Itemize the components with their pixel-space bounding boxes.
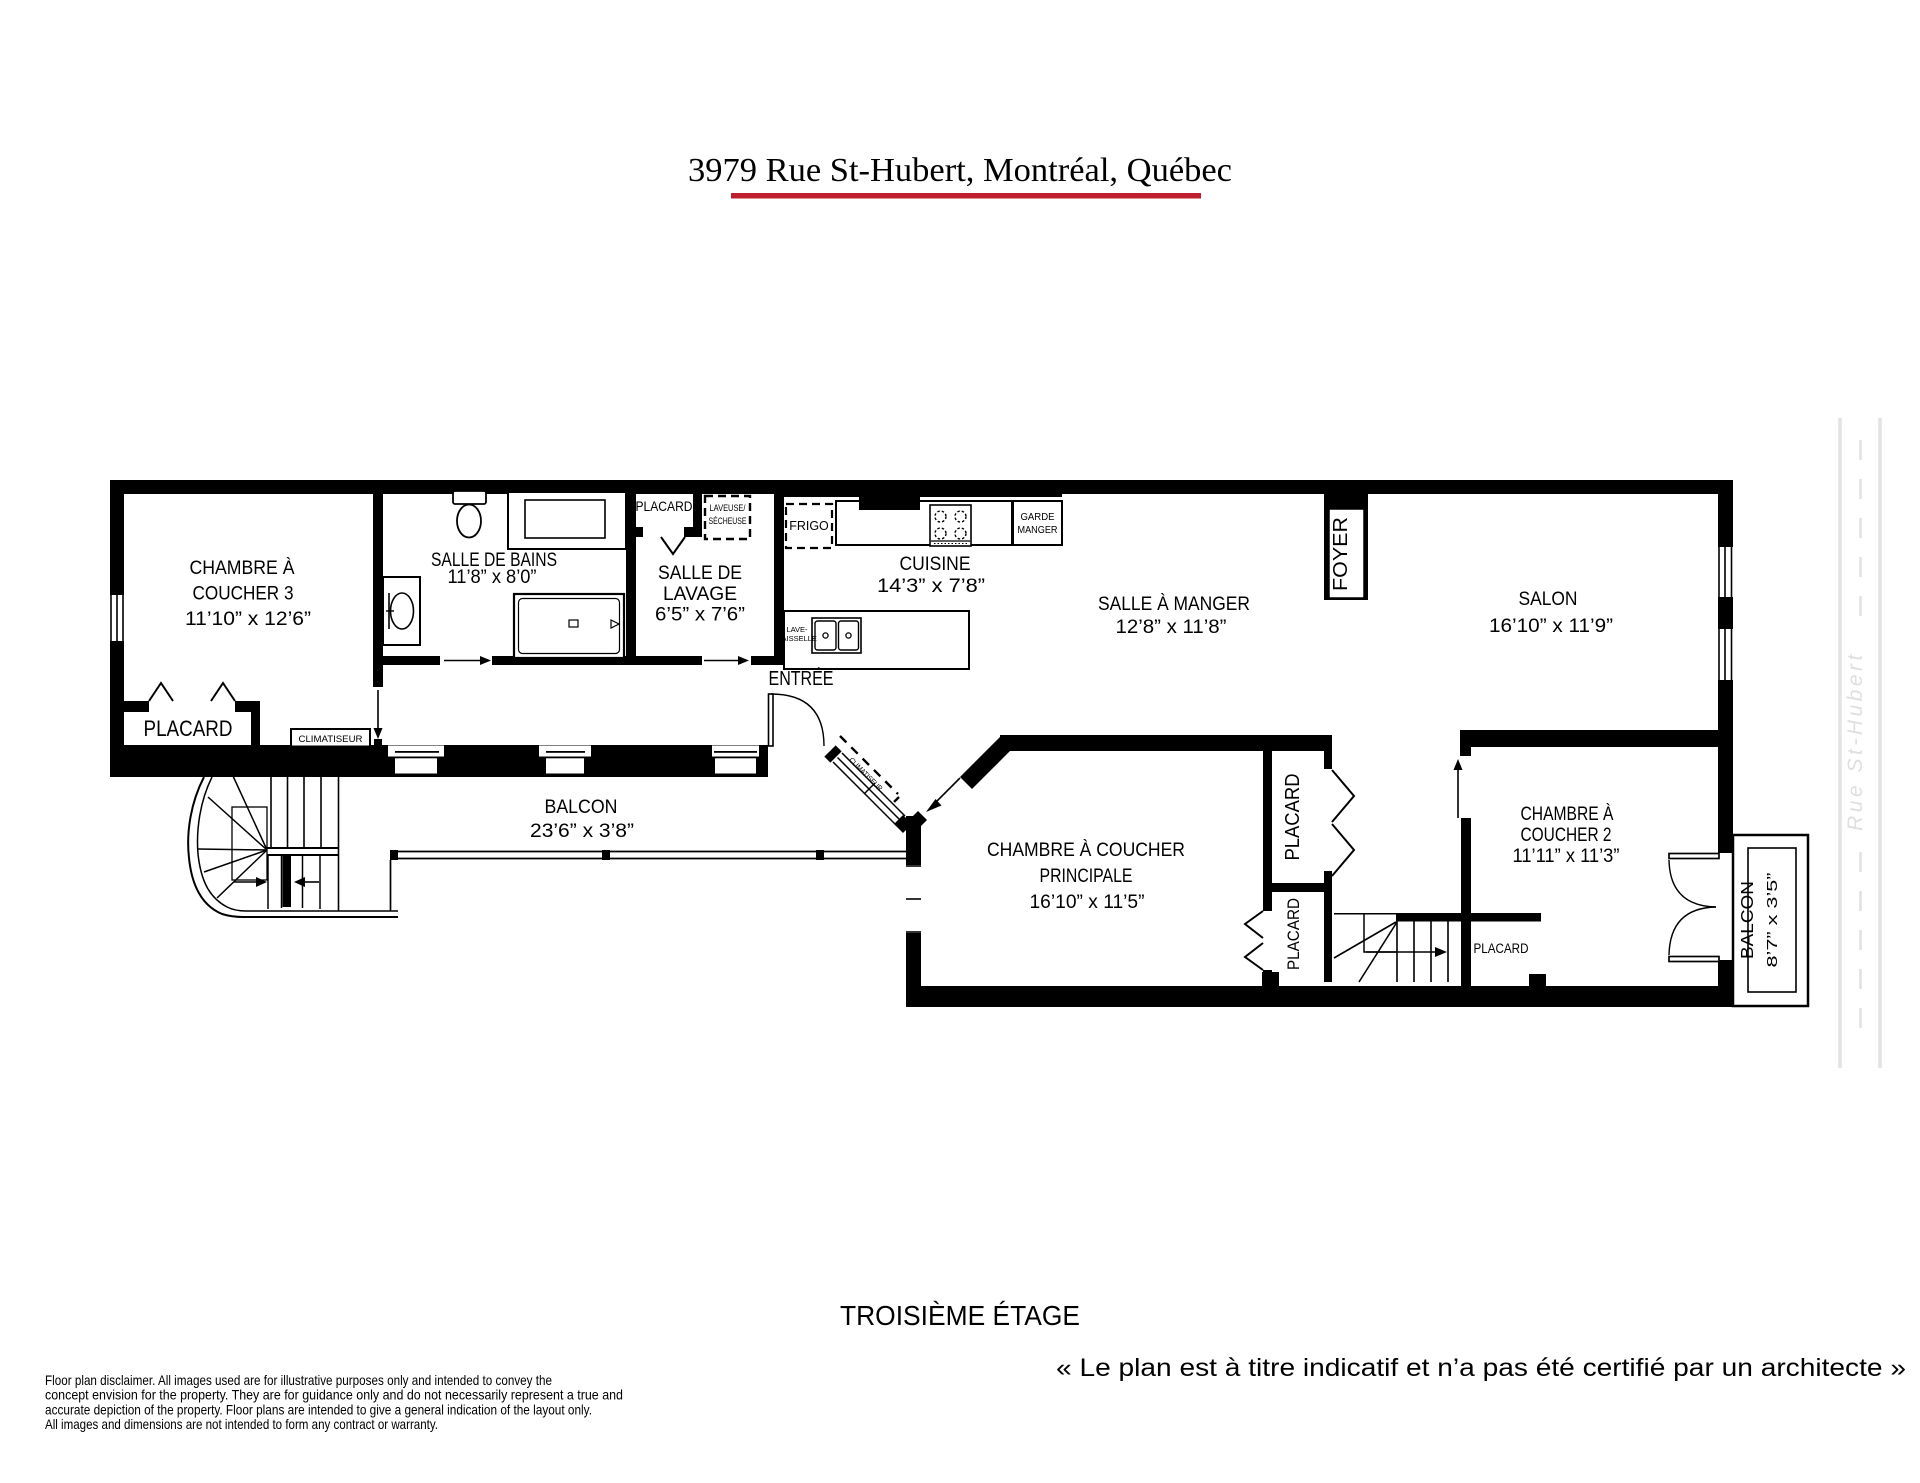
svg-text:PLACARD: PLACARD <box>144 716 233 741</box>
svg-text:6’5” x 7’6”: 6’5” x 7’6” <box>655 605 745 626</box>
svg-text:PLACARD: PLACARD <box>1284 898 1303 970</box>
svg-text:LAVE-: LAVE- <box>786 625 808 634</box>
svg-text:MANGER: MANGER <box>1018 524 1058 536</box>
svg-text:accurate depiction of the prop: accurate depiction of the property. Floo… <box>45 1401 592 1417</box>
svg-text:COUCHER 2: COUCHER 2 <box>1521 825 1612 846</box>
svg-text:16’10” x 11’9”: 16’10” x 11’9” <box>1489 616 1613 637</box>
svg-text:GARDE: GARDE <box>1021 511 1055 523</box>
svg-text:CUISINE: CUISINE <box>900 554 971 575</box>
svg-text:Floor plan disclaimer. All ima: Floor plan disclaimer. All images used a… <box>45 1372 552 1388</box>
svg-text:14’3” x 7’8”: 14’3” x 7’8” <box>877 576 985 597</box>
svg-text:23’6” x 3’8”: 23’6” x 3’8” <box>530 821 634 842</box>
svg-text:11’10” x 12’6”: 11’10” x 12’6” <box>185 609 311 630</box>
svg-text:« Le plan est à titre indicati: « Le plan est à titre indicatif et n’a p… <box>1056 1354 1906 1382</box>
svg-text:COUCHER 3: COUCHER 3 <box>193 584 294 605</box>
svg-text:PRINCIPALE: PRINCIPALE <box>1040 866 1133 887</box>
svg-text:FOYER: FOYER <box>1330 517 1352 591</box>
svg-text:PLACARD: PLACARD <box>636 498 693 514</box>
svg-text:SALLE À MANGER: SALLE À MANGER <box>1098 594 1250 615</box>
svg-text:8’7” x 3’5”: 8’7” x 3’5” <box>1764 872 1781 967</box>
svg-text:PLACARD: PLACARD <box>1474 941 1529 956</box>
svg-text:concept envision for the prope: concept envision for the property. They … <box>45 1387 623 1403</box>
svg-text:SALON: SALON <box>1519 589 1578 610</box>
svg-text:11’8” x 8’0”: 11’8” x 8’0” <box>448 567 537 588</box>
svg-text:12’8” x 11’8”: 12’8” x 11’8” <box>1116 617 1227 638</box>
svg-text:16’10” x 11’5”: 16’10” x 11’5” <box>1030 892 1145 913</box>
svg-text:BALCON: BALCON <box>1737 881 1757 959</box>
svg-text:LAVEUSE/: LAVEUSE/ <box>710 503 746 514</box>
svg-text:LAVAGE: LAVAGE <box>663 584 737 605</box>
svg-text:CHAMBRE À: CHAMBRE À <box>190 558 295 579</box>
svg-text:VAISSELLE: VAISSELLE <box>777 634 817 643</box>
svg-text:SALLE DE: SALLE DE <box>658 563 742 584</box>
svg-text:11’11” x 11’3”: 11’11” x 11’3” <box>1513 846 1620 867</box>
svg-text:Rue St-Hubert: Rue St-Hubert <box>1844 651 1867 831</box>
svg-text:FRIGO: FRIGO <box>789 519 829 533</box>
svg-text:PLACARD: PLACARD <box>1282 774 1304 861</box>
svg-text:ENTRÉE: ENTRÉE <box>769 667 834 690</box>
svg-text:CLIMATISEUR: CLIMATISEUR <box>299 734 363 745</box>
svg-text:CHAMBRE À COUCHER: CHAMBRE À COUCHER <box>987 840 1185 861</box>
svg-text:All images and dimensions are: All images and dimensions are not intend… <box>45 1416 438 1432</box>
svg-text:BALCON: BALCON <box>545 797 618 818</box>
svg-text:TROISIÈME ÉTAGE: TROISIÈME ÉTAGE <box>840 1300 1080 1331</box>
svg-text:CHAMBRE À: CHAMBRE À <box>1521 804 1614 825</box>
svg-text:SÉCHEUSE: SÉCHEUSE <box>709 516 747 527</box>
svg-text:3979 Rue St-Hubert, Montréal,: 3979 Rue St-Hubert, Montréal, Québec <box>688 152 1232 189</box>
